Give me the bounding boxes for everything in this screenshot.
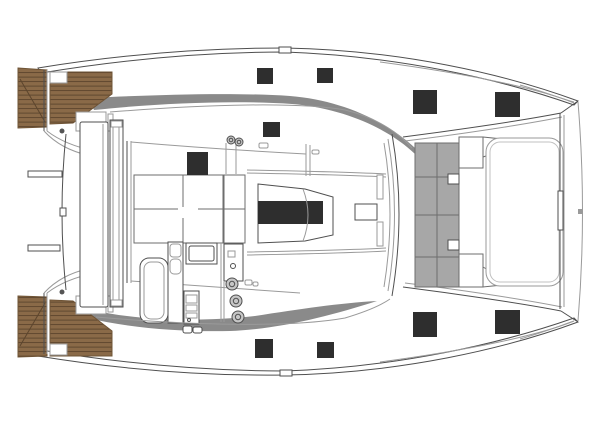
dinette-table-gap (178, 207, 198, 218)
deck-hatch (413, 312, 437, 337)
lounge-seat-grid (415, 143, 459, 287)
winch (232, 311, 244, 323)
helm-panel (224, 244, 243, 281)
winch (227, 136, 235, 144)
deck-plan-svg (0, 0, 600, 424)
aft-ladder-cap-bottom (111, 300, 122, 306)
starboard-cleat-notch (280, 370, 292, 376)
deck-hatch (257, 68, 273, 84)
deck-fitting-bottom-2 (253, 282, 258, 286)
lounge-cupholder-bottom (448, 240, 459, 250)
catamaran-deck-plan (0, 0, 600, 424)
starboard-inner-hull-edge (403, 287, 561, 311)
lounge-seat-cell (437, 215, 459, 257)
winches (226, 136, 244, 323)
bowsprit-fitting (578, 209, 582, 214)
port-cleat (60, 129, 65, 134)
port-side-deck (88, 94, 415, 154)
trampoline-outer (486, 138, 563, 286)
lounge-seat-cell (415, 143, 437, 177)
lounge-cupholder-top (448, 174, 459, 184)
lounge-seat-cell (415, 257, 437, 287)
deck-hatch (413, 90, 437, 114)
aft-beam (80, 122, 108, 307)
cockpit-locker-hatch (187, 152, 208, 175)
davit-arm-starboard (28, 245, 60, 251)
salon-roof-line-bottom (247, 248, 386, 252)
salon-roof-hatch (355, 204, 377, 220)
lounge-arm-top (459, 137, 483, 168)
port-inner-hull-edge (403, 113, 561, 137)
cockpit-top-boundary (131, 142, 306, 154)
deck-fitting-bottom-1 (245, 280, 252, 285)
deck-hatch (263, 122, 280, 137)
davit-arm-port (28, 171, 62, 177)
port-bow-inner-line (520, 85, 574, 102)
aft-ladder (110, 120, 123, 307)
davit-fitting (60, 208, 66, 216)
salon-skylight-glass (258, 201, 323, 224)
starboard-transom-steps-teak (18, 296, 47, 357)
windshield-outer (392, 134, 399, 296)
windshield-mid (388, 139, 395, 291)
deck-hatch (317, 68, 333, 83)
starboard-cleat (60, 290, 65, 295)
windshield-vent-top (377, 175, 383, 199)
lounge-seat-cell (415, 177, 437, 215)
windshield-vent-bottom (377, 222, 383, 246)
lounge-seat-cell (437, 143, 459, 177)
winch (230, 295, 242, 307)
starboard-bow-inner-line (520, 321, 574, 339)
deck-fitting-aft-1 (183, 326, 192, 333)
port-platform-notch (50, 72, 67, 83)
deck-hatch (495, 310, 520, 334)
port-cleat-notch (279, 47, 291, 53)
deck-fitting-top-1 (259, 143, 268, 148)
winch (235, 138, 243, 146)
deck-hatch (255, 339, 273, 358)
starboard-platform-notch (50, 344, 67, 355)
lounge-seat-cell (437, 257, 459, 287)
port-transom-steps-teak (18, 68, 47, 128)
crossbeam-gate (558, 191, 563, 230)
lounge-arm-bottom (459, 254, 483, 287)
port-inner-sheer-line (380, 62, 574, 103)
winch (226, 278, 238, 290)
windshield-inner (384, 143, 390, 287)
bow-area (486, 102, 583, 321)
deck-hatch (495, 92, 520, 117)
deck-fitting-aft-2 (193, 327, 202, 333)
cockpit (127, 141, 319, 333)
salon-roof-line-top-2 (247, 173, 386, 177)
aft-platform (28, 120, 123, 307)
deck-fitting-top-2 (312, 150, 319, 154)
lounge-seat-cell (415, 215, 437, 257)
aft-ladder-cap-top (111, 121, 122, 127)
deck-hatch (317, 342, 334, 358)
coachroof-top-edge (110, 105, 412, 148)
